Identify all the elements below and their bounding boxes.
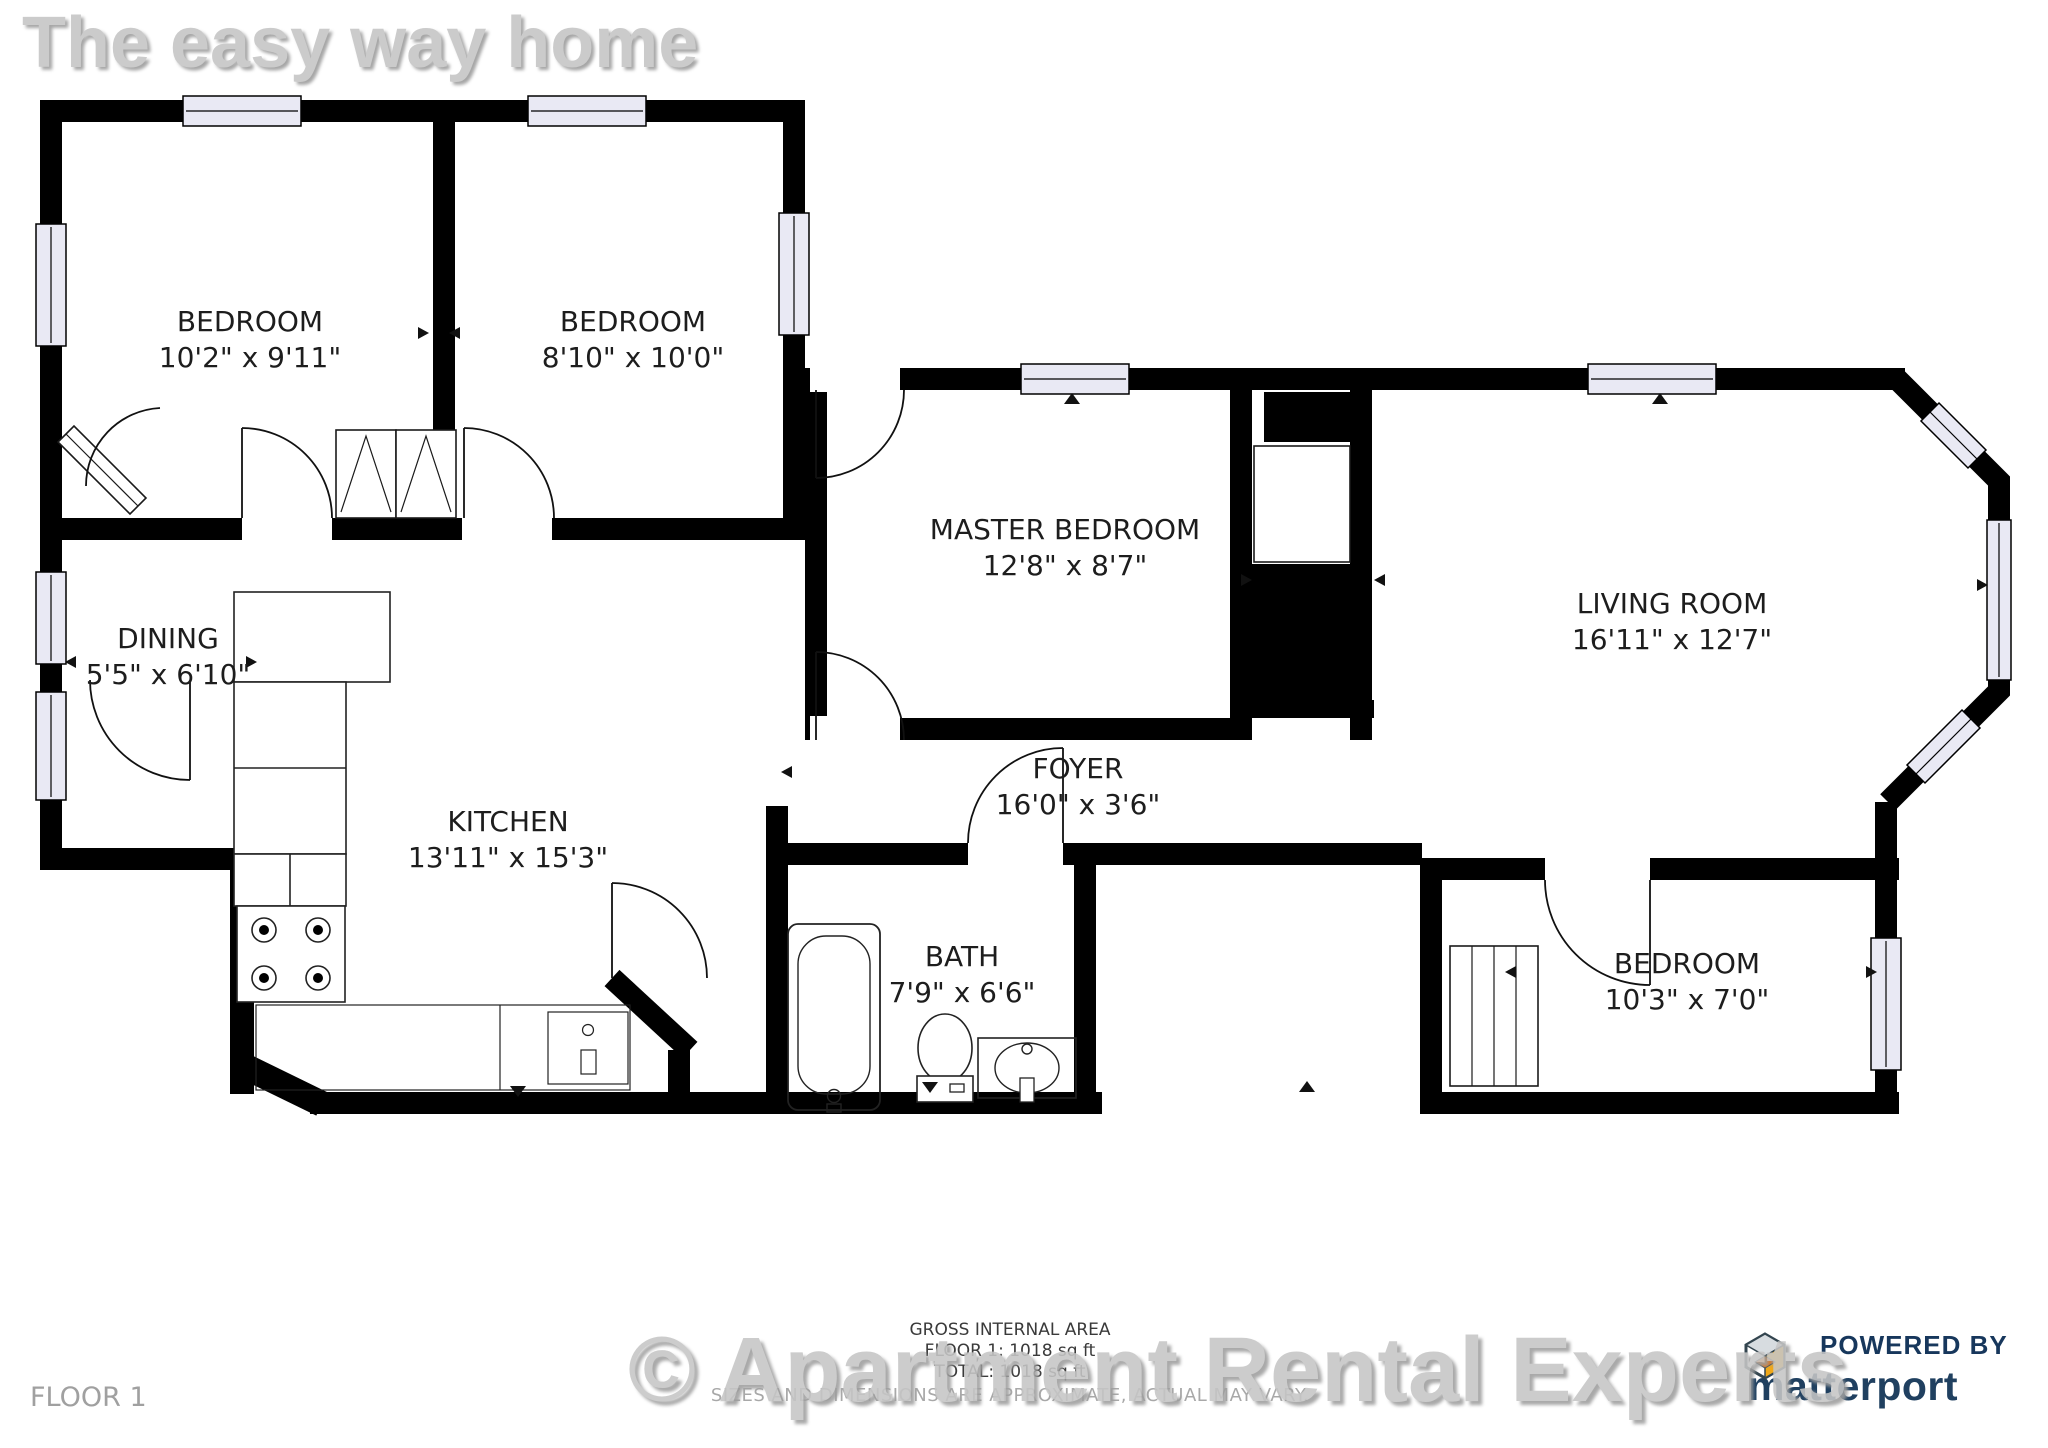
room-name: BEDROOM	[1605, 946, 1770, 982]
room-dims: 12'8" x 8'7"	[930, 548, 1200, 584]
room-name: DINING	[86, 621, 251, 657]
floor-label: FLOOR 1	[30, 1382, 147, 1413]
room-label-bedroom-3: BEDROOM 10'3" x 7'0"	[1605, 946, 1770, 1018]
room-dims: 10'2" x 9'11"	[159, 340, 341, 376]
watermark-bottom: © Apartment Rental Experts	[628, 1318, 1848, 1423]
toilet	[918, 1014, 972, 1082]
room-label-bedroom-2: BEDROOM 8'10" x 10'0"	[542, 304, 724, 376]
room-dims: 16'0" x 3'6"	[996, 787, 1161, 823]
room-label-dining: DINING 5'5" x 6'10"	[86, 621, 251, 693]
room-name: BATH	[889, 939, 1036, 975]
room-dims: 5'5" x 6'10"	[86, 657, 251, 693]
room-name: MASTER BEDROOM	[930, 512, 1200, 548]
room-dims: 16'11" x 12'7"	[1572, 622, 1772, 658]
floorplan-page: The easy way home © Apartment Rental Exp…	[0, 0, 2048, 1448]
room-name: LIVING ROOM	[1572, 586, 1772, 622]
room-name: FOYER	[996, 751, 1161, 787]
watermark-top: The easy way home	[22, 2, 698, 84]
room-name: BEDROOM	[159, 304, 341, 340]
room-name: KITCHEN	[408, 804, 608, 840]
room-label-living-room: LIVING ROOM 16'11" x 12'7"	[1572, 586, 1772, 658]
room-dims: 13'11" x 15'3"	[408, 840, 608, 876]
room-label-master-bedroom: MASTER BEDROOM 12'8" x 8'7"	[930, 512, 1200, 584]
bathtub	[788, 924, 880, 1110]
room-label-kitchen: KITCHEN 13'11" x 15'3"	[408, 804, 608, 876]
room-name: BEDROOM	[542, 304, 724, 340]
room-dims: 8'10" x 10'0"	[542, 340, 724, 376]
stove	[237, 906, 345, 1002]
kitchen-sink	[548, 1012, 628, 1084]
powered-by-label: POWERED BY	[1820, 1330, 2008, 1361]
room-label-bath: BATH 7'9" x 6'6"	[889, 939, 1036, 1011]
room-dims: 10'3" x 7'0"	[1605, 982, 1770, 1018]
floor-plan	[0, 0, 2048, 1448]
room-label-foyer: FOYER 16'0" x 3'6"	[996, 751, 1161, 823]
room-label-bedroom-1: BEDROOM 10'2" x 9'11"	[159, 304, 341, 376]
room-dims: 7'9" x 6'6"	[889, 975, 1036, 1011]
